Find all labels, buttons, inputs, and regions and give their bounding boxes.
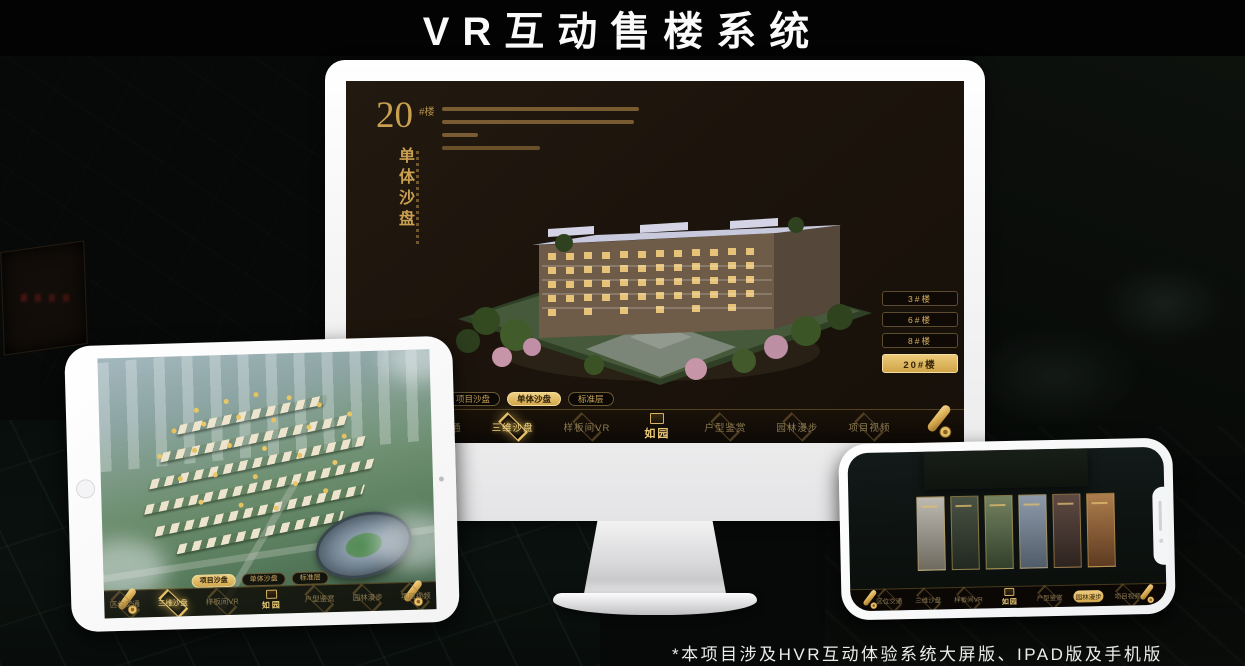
nav-item-project-video[interactable]: 项目视频 <box>844 417 894 437</box>
gallery-panel-building[interactable] <box>1018 494 1048 569</box>
phone-device: 区位交通 三维沙盘 样板间VR 如园 户型鉴赏 园林漫步 项目视频 <box>838 438 1176 621</box>
subtab-standard-floor[interactable]: 标准层 <box>568 392 614 407</box>
nav-item-showroom-vr[interactable]: 样板间VR <box>560 417 615 437</box>
phone-navbar: 区位交通 三维沙盘 样板间VR 如园 户型鉴赏 园林漫步 项目视频 <box>850 583 1166 612</box>
subtab-single-sandtable[interactable]: 单体沙盘 <box>241 572 285 586</box>
brand-name: 如园 <box>1002 597 1018 607</box>
nav-item-garden-walk[interactable]: 园林漫步 <box>349 590 385 606</box>
building-model <box>444 133 876 395</box>
subtab-standard-floor[interactable]: 标准层 <box>291 571 328 585</box>
gallery-panel-interior[interactable] <box>916 496 946 571</box>
brand-logo: 如园 <box>1002 588 1018 607</box>
background-plaque <box>0 240 88 355</box>
scene-gallery <box>916 490 1116 574</box>
page-title: VR互动售楼系统 <box>0 0 1245 56</box>
background-aerial-photo <box>975 56 1245 456</box>
nav-item-showroom-vr[interactable]: 样板间VR <box>203 594 242 610</box>
nav-item-3d-sandtable[interactable]: 三维沙盘 <box>488 417 538 437</box>
nav-item-floorplan[interactable]: 户型鉴赏 <box>301 591 337 607</box>
nav-item-garden-walk[interactable]: 园林漫步 <box>1074 589 1104 602</box>
subtab-project-sandtable[interactable]: 项目沙盘 <box>192 574 236 588</box>
gallery-panel-landscape[interactable] <box>984 495 1014 570</box>
building-subtitle-vertical: 单体沙盘 <box>392 147 416 231</box>
phone-screen: 区位交通 三维沙盘 样板间VR 如园 户型鉴赏 园林漫步 项目视频 <box>847 447 1166 612</box>
subtab-single-sandtable[interactable]: 单体沙盘 <box>507 392 561 407</box>
monitor-subtabs: 项目沙盘 单体沙盘 标准层 <box>446 392 614 407</box>
building-caption-decor <box>416 151 419 247</box>
courtyard-gate-silhouette <box>923 448 1088 489</box>
brand-seal-icon <box>1005 588 1015 596</box>
brand-seal-icon <box>650 413 664 424</box>
nav-item-floorplan[interactable]: 户型鉴赏 <box>700 417 750 437</box>
ipad-camera <box>439 476 444 481</box>
brand-seal-icon <box>266 590 277 599</box>
floor-button-6[interactable]: 6#楼 <box>882 312 958 327</box>
building-number-markers <box>97 358 102 363</box>
building-number-suffix: #楼 <box>419 103 435 134</box>
brand-logo: 如园 <box>261 589 282 611</box>
building-number: 20 <box>376 97 413 134</box>
nav-item-3d-sandtable[interactable]: 三维沙盘 <box>155 595 191 611</box>
nav-item-location-traffic[interactable]: 区位交通 <box>874 594 904 607</box>
nav-item-floorplan[interactable]: 户型鉴赏 <box>1035 590 1065 603</box>
ipad-device: 项目沙盘 单体沙盘 标准层 区位交通 三维沙盘 样板间VR 如园 <box>64 336 460 633</box>
building-title: 20 #楼 <box>376 97 435 134</box>
floor-button-group: 3#楼 6#楼 8#楼 20#楼 <box>882 291 958 373</box>
floor-button-8[interactable]: 8#楼 <box>882 333 958 348</box>
footnote: *本项目涉及HVR互动体验系统大屏版、IPAD版及手机版 <box>672 640 1163 665</box>
nav-item-project-video[interactable]: 项目视频 <box>1113 589 1143 602</box>
gallery-panel-garden-night[interactable] <box>950 496 980 571</box>
subtab-project-sandtable[interactable]: 项目沙盘 <box>446 392 500 407</box>
nav-item-showroom-vr[interactable]: 样板间VR <box>952 592 985 605</box>
gallery-panel-autumn-court[interactable] <box>1052 493 1082 568</box>
nav-item-project-video[interactable]: 项目视频 <box>397 588 433 604</box>
ipad-screen: 项目沙盘 单体沙盘 标准层 区位交通 三维沙盘 样板间VR 如园 <box>97 349 436 618</box>
floor-button-3[interactable]: 3#楼 <box>882 291 958 306</box>
gallery-panel-study[interactable] <box>1086 493 1116 568</box>
scroll-icon <box>922 402 956 442</box>
monitor-stand <box>583 521 727 599</box>
floor-button-20[interactable]: 20#楼 <box>882 354 958 373</box>
nav-item-garden-walk[interactable]: 园林漫步 <box>772 417 822 437</box>
brand-name: 如园 <box>644 425 670 441</box>
brand-name: 如园 <box>262 599 282 611</box>
ipad-home-button[interactable] <box>76 479 96 499</box>
page: VR互动售楼系统 20 #楼 单体沙盘 <box>0 0 1245 666</box>
brand-logo: 如园 <box>644 413 670 441</box>
nav-item-location-traffic[interactable]: 区位交通 <box>107 596 143 612</box>
phone-notch <box>1152 487 1169 565</box>
nav-item-3d-sandtable[interactable]: 三维沙盘 <box>913 593 943 606</box>
